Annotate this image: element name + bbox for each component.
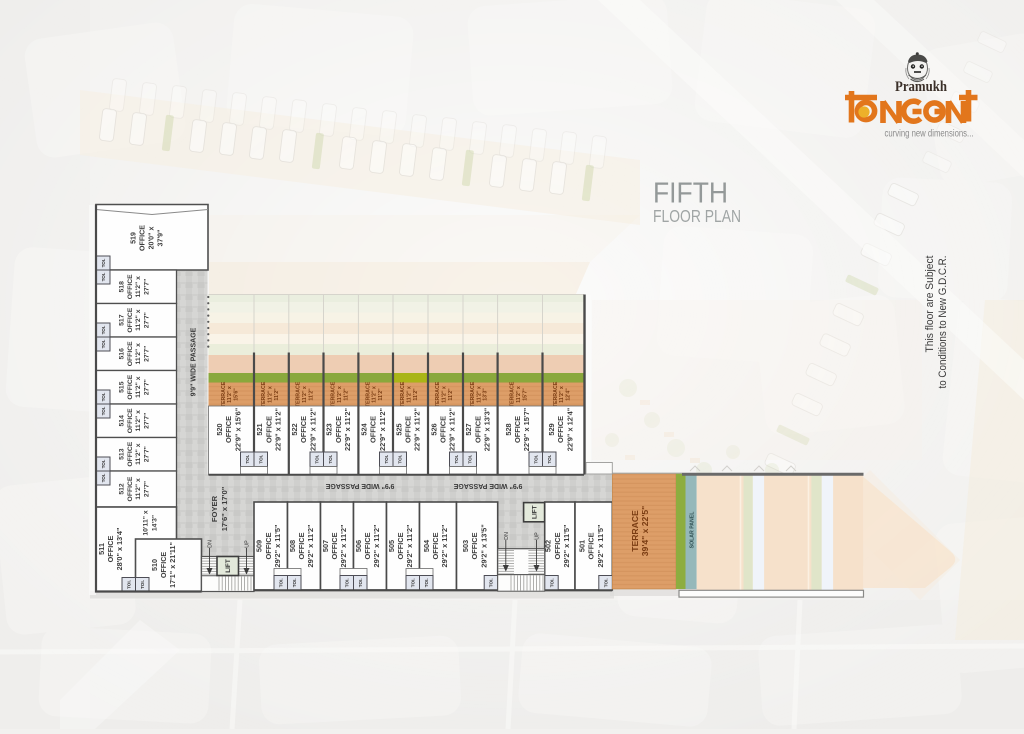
svg-text:521: 521 (255, 423, 264, 435)
svg-text:523: 523 (325, 423, 334, 435)
svg-text:518: 518 (119, 281, 126, 293)
svg-text:512: 512 (119, 483, 126, 495)
svg-text:OFFICE: OFFICE (127, 441, 134, 466)
svg-text:528: 528 (504, 423, 513, 435)
svg-text:22'9" x 11'2": 22'9" x 11'2" (308, 408, 317, 451)
svg-text:OFFICE: OFFICE (127, 408, 134, 433)
svg-text:OFFICE: OFFICE (127, 374, 134, 399)
svg-text:29'2" x 11'2": 29'2" x 11'2" (339, 524, 348, 567)
svg-text:OFFICE: OFFICE (159, 552, 168, 579)
svg-text:27'7": 27'7" (143, 481, 150, 497)
svg-text:17'6" x 17'0": 17'6" x 17'0" (220, 486, 229, 531)
svg-text:TERRACE: TERRACE (365, 381, 371, 407)
svg-text:11'2" x: 11'2" x (337, 386, 343, 403)
svg-text:29'2" x 11'5": 29'2" x 11'5" (562, 524, 571, 567)
svg-text:519: 519 (130, 232, 138, 244)
svg-text:10'11" x: 10'11" x (143, 510, 150, 535)
svg-text:29'2" x 11'2": 29'2" x 11'2" (372, 524, 381, 567)
svg-text:TERRACE: TERRACE (470, 381, 476, 407)
svg-text:11'2" x: 11'2" x (135, 443, 142, 465)
svg-text:TOI.: TOI. (140, 580, 145, 589)
svg-text:22'9" x 12'4": 22'9" x 12'4" (565, 407, 574, 451)
svg-text:9'9" WIDE PASSAGE: 9'9" WIDE PASSAGE (325, 482, 394, 489)
svg-text:TERRACE: TERRACE (553, 381, 559, 407)
svg-text:OFFICE: OFFICE (473, 416, 482, 443)
svg-text:527: 527 (464, 423, 473, 435)
svg-text:17'1" x 21'11": 17'1" x 21'11" (168, 542, 177, 588)
svg-text:22'9" x 11'2": 22'9" x 11'2" (274, 408, 283, 451)
svg-text:503: 503 (461, 540, 470, 552)
svg-text:OFFICE: OFFICE (330, 532, 339, 559)
svg-text:11'2" x: 11'2" x (516, 386, 522, 403)
svg-text:TOI.: TOI. (603, 578, 608, 587)
svg-text:to Conditions to New G.D.C.R.: to Conditions to New G.D.C.R. (937, 256, 949, 389)
svg-text:27'7": 27'7" (143, 279, 150, 295)
svg-text:11'2": 11'2" (343, 388, 349, 401)
svg-text:OFFICE: OFFICE (127, 307, 134, 332)
svg-text:29'2" x 11'5": 29'2" x 11'5" (273, 524, 282, 567)
svg-text:TOI.: TOI. (454, 455, 459, 464)
svg-text:LIFT: LIFT (225, 559, 232, 573)
svg-text:520: 520 (215, 423, 224, 435)
svg-text:27'7": 27'7" (143, 413, 150, 429)
svg-text:UP: UP (535, 532, 541, 540)
svg-text:OFFICE: OFFICE (139, 225, 147, 251)
svg-text:22'9" x 15'7": 22'9" x 15'7" (522, 407, 531, 451)
svg-text:TOI.: TOI. (411, 578, 416, 587)
svg-text:11'2": 11'2" (378, 388, 384, 401)
svg-text:TERRACE: TERRACE (331, 381, 337, 407)
svg-text:11'2" x: 11'2" x (135, 410, 142, 432)
svg-text:This floor are Subject: This floor are Subject (924, 256, 936, 353)
svg-text:OFFICE: OFFICE (556, 416, 565, 443)
svg-text:curving new dimensions...: curving new dimensions... (885, 129, 974, 140)
svg-text:OFFICE: OFFICE (264, 416, 273, 443)
svg-text:OFFICE: OFFICE (470, 532, 479, 559)
svg-text:11'2" x: 11'2" x (267, 386, 273, 403)
svg-text:29'2" x 11'2": 29'2" x 11'2" (440, 524, 449, 567)
svg-text:37'9": 37'9" (157, 230, 165, 247)
svg-text:OFFICE: OFFICE (297, 532, 306, 559)
svg-text:11'2" x: 11'2" x (135, 478, 142, 500)
svg-text:11'2": 11'2" (309, 388, 315, 401)
svg-text:22'9" x 11'2": 22'9" x 11'2" (448, 408, 457, 451)
svg-text:TOI.: TOI. (245, 455, 250, 464)
svg-text:TOI.: TOI. (127, 580, 132, 589)
svg-text:508: 508 (288, 540, 297, 552)
svg-text:OFFICE: OFFICE (224, 416, 233, 443)
svg-text:11'2": 11'2" (448, 388, 454, 401)
svg-text:TERRACE: TERRACE (400, 381, 406, 407)
svg-text:TOI.: TOI. (101, 273, 106, 282)
svg-text:OFFICE: OFFICE (363, 532, 372, 559)
svg-text:OFFICE: OFFICE (264, 532, 273, 559)
svg-text:29'2" x 11'2": 29'2" x 11'2" (405, 524, 414, 567)
svg-text:TOI.: TOI. (345, 578, 350, 587)
svg-text:12'4": 12'4" (566, 388, 572, 401)
svg-text:11'2" x: 11'2" x (476, 386, 482, 403)
svg-text:9'9" WIDE PASSAGE: 9'9" WIDE PASSAGE (453, 482, 522, 489)
svg-text:529: 529 (547, 423, 556, 435)
svg-text:9'9" WIDE PASSAGE: 9'9" WIDE PASSAGE (191, 327, 198, 396)
svg-text:39'4" x 22'5": 39'4" x 22'5" (640, 506, 650, 556)
svg-text:SOLAR PANEL: SOLAR PANEL (689, 511, 695, 549)
svg-text:TOI.: TOI. (468, 455, 473, 464)
svg-text:FLOOR PLAN: FLOOR PLAN (653, 206, 741, 226)
svg-text:TOI.: TOI. (358, 578, 363, 587)
svg-text:OFFICE: OFFICE (369, 416, 378, 443)
svg-text:515: 515 (119, 381, 126, 393)
svg-text:OFFICE: OFFICE (106, 535, 115, 562)
svg-text:OFFICE: OFFICE (334, 416, 343, 443)
svg-text:TOI.: TOI. (101, 259, 106, 268)
svg-text:506: 506 (354, 540, 363, 552)
svg-text:TOI.: TOI. (101, 474, 106, 483)
svg-text:510: 510 (150, 559, 159, 571)
svg-text:11'2" x: 11'2" x (135, 309, 142, 331)
svg-text:OFFICE: OFFICE (513, 416, 522, 443)
svg-text:11'2" x: 11'2" x (135, 276, 142, 298)
svg-text:15'7": 15'7" (522, 388, 528, 401)
svg-text:TOI.: TOI. (292, 578, 297, 587)
svg-text:509: 509 (255, 540, 264, 552)
svg-text:TOI.: TOI. (101, 407, 106, 416)
svg-text:OFFICE: OFFICE (553, 532, 562, 559)
svg-text:11'2" x: 11'2" x (372, 386, 378, 403)
svg-text:504: 504 (422, 539, 431, 552)
svg-text:505: 505 (387, 540, 396, 552)
svg-text:517: 517 (119, 314, 126, 326)
svg-text:OFFICE: OFFICE (396, 532, 405, 559)
svg-text:OFFICE: OFFICE (439, 416, 448, 443)
svg-text:22'9" x 11'2": 22'9" x 11'2" (378, 408, 387, 451)
svg-text:TERRACE: TERRACE (221, 381, 227, 407)
svg-text:525: 525 (394, 423, 403, 435)
svg-text:11'2" x: 11'2" x (559, 386, 565, 403)
svg-text:29'2" x 13'5": 29'2" x 13'5" (479, 524, 488, 568)
svg-text:TOI.: TOI. (398, 455, 403, 464)
svg-text:TOI.: TOI. (489, 578, 494, 587)
svg-text:27'7": 27'7" (143, 346, 150, 362)
svg-text:20'0" x: 20'0" x (148, 227, 156, 250)
svg-text:14'3": 14'3" (151, 515, 158, 531)
svg-text:22'9" x 11'2": 22'9" x 11'2" (343, 408, 352, 451)
svg-text:UP: UP (245, 540, 251, 548)
svg-text:29'2" x 11'2": 29'2" x 11'2" (306, 524, 315, 567)
svg-text:11'2" x: 11'2" x (227, 386, 233, 403)
svg-text:Pramukh: Pramukh (895, 79, 947, 95)
svg-text:TERRACE: TERRACE (435, 381, 441, 407)
svg-text:524: 524 (360, 422, 369, 435)
svg-text:TERRACE: TERRACE (630, 510, 640, 552)
svg-text:LIFT: LIFT (532, 505, 539, 519)
svg-text:22'9" x 13'3": 22'9" x 13'3" (483, 407, 492, 451)
svg-text:TOI.: TOI. (279, 578, 284, 587)
svg-text:514: 514 (119, 415, 126, 427)
svg-text:TOI.: TOI. (101, 460, 106, 469)
svg-text:28'0" x 13'4": 28'0" x 13'4" (115, 528, 124, 571)
svg-text:TOI.: TOI. (547, 455, 552, 464)
svg-text:OFFICE: OFFICE (127, 476, 134, 501)
svg-text:29'2" x 11'5": 29'2" x 11'5" (596, 524, 605, 567)
svg-text:OFFICE: OFFICE (127, 274, 134, 299)
svg-text:TERRACE: TERRACE (296, 381, 302, 407)
svg-text:OFFICE: OFFICE (127, 341, 134, 366)
svg-text:FIFTH: FIFTH (653, 178, 728, 210)
svg-text:15'6": 15'6" (234, 388, 240, 401)
svg-text:11'2" x: 11'2" x (302, 386, 308, 403)
svg-text:27'7": 27'7" (143, 312, 150, 328)
svg-text:11'2" x: 11'2" x (407, 386, 413, 403)
svg-text:11'2" x: 11'2" x (135, 376, 142, 398)
svg-text:OFFICE: OFFICE (299, 416, 308, 443)
svg-text:22'9" x 11'2": 22'9" x 11'2" (413, 408, 422, 451)
svg-text:13'3": 13'3" (483, 388, 489, 401)
svg-text:22'9" x 15'6": 22'9" x 15'6" (233, 407, 242, 451)
svg-text:TOI.: TOI. (101, 340, 106, 349)
svg-text:FOYER: FOYER (210, 495, 219, 522)
svg-text:513: 513 (119, 448, 126, 460)
svg-text:TERRACE: TERRACE (510, 381, 516, 407)
svg-text:TOI.: TOI. (315, 455, 320, 464)
svg-text:TOI.: TOI. (328, 455, 333, 464)
svg-text:TOI.: TOI. (101, 326, 106, 335)
svg-text:27'7": 27'7" (143, 379, 150, 395)
svg-text:501: 501 (577, 540, 586, 552)
svg-text:TOI.: TOI. (534, 455, 539, 464)
svg-text:11'2": 11'2" (413, 388, 419, 401)
svg-text:TERRACE: TERRACE (261, 381, 267, 407)
svg-text:OFFICE: OFFICE (587, 532, 596, 559)
svg-text:OFFICE: OFFICE (404, 416, 413, 443)
svg-text:TOI.: TOI. (259, 455, 264, 464)
svg-text:TOI.: TOI. (384, 455, 389, 464)
svg-text:11'2": 11'2" (274, 388, 280, 401)
svg-text:TOI.: TOI. (424, 578, 429, 587)
svg-text:526: 526 (429, 423, 438, 435)
svg-text:507: 507 (321, 540, 330, 552)
svg-text:511: 511 (97, 543, 106, 555)
svg-text:TOI.: TOI. (549, 578, 554, 587)
svg-text:OFFICE: OFFICE (431, 532, 440, 559)
svg-text:516: 516 (119, 348, 126, 360)
svg-text:DN: DN (504, 532, 510, 540)
svg-text:27'7": 27'7" (143, 446, 150, 462)
svg-text:11'2" x: 11'2" x (135, 343, 142, 365)
svg-text:DN: DN (208, 540, 214, 548)
svg-text:522: 522 (290, 423, 299, 435)
svg-text:11'2" x: 11'2" x (442, 386, 448, 403)
svg-text:TOI.: TOI. (101, 393, 106, 402)
